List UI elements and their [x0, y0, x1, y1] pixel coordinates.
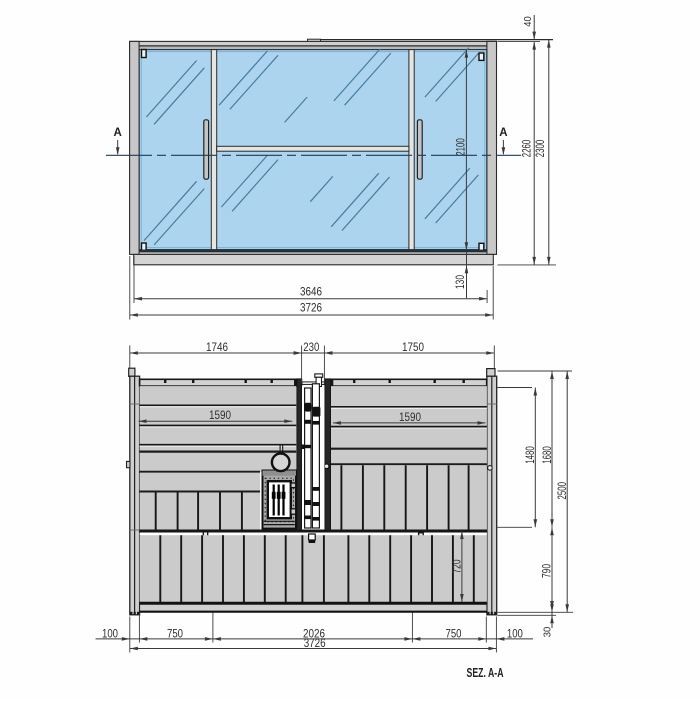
svg-text:100: 100 [102, 628, 118, 640]
svg-text:1750: 1750 [402, 342, 424, 354]
svg-text:1590: 1590 [399, 412, 421, 424]
svg-text:720: 720 [451, 560, 463, 574]
svg-text:2100: 2100 [455, 138, 467, 156]
svg-text:2300: 2300 [535, 140, 547, 158]
svg-text:100: 100 [507, 628, 523, 640]
svg-text:230: 230 [303, 342, 319, 354]
svg-text:2500: 2500 [557, 482, 569, 500]
svg-text:40: 40 [522, 16, 534, 27]
svg-text:790: 790 [541, 564, 553, 578]
svg-text:1746: 1746 [206, 342, 228, 354]
svg-text:3646: 3646 [300, 286, 322, 298]
svg-text:750: 750 [167, 628, 183, 640]
svg-text:1680: 1680 [542, 446, 554, 464]
svg-text:SEZ. A-A: SEZ. A-A [467, 666, 504, 680]
svg-text:3726: 3726 [304, 638, 326, 650]
svg-text:1590: 1590 [209, 410, 231, 422]
svg-text:3726: 3726 [300, 303, 322, 315]
svg-text:1480: 1480 [525, 446, 537, 464]
svg-text:A: A [113, 127, 121, 139]
svg-text:2260: 2260 [521, 140, 533, 158]
svg-text:130: 130 [455, 275, 467, 289]
svg-text:30: 30 [541, 627, 553, 638]
svg-text:A: A [499, 127, 507, 139]
svg-text:750: 750 [446, 628, 462, 640]
